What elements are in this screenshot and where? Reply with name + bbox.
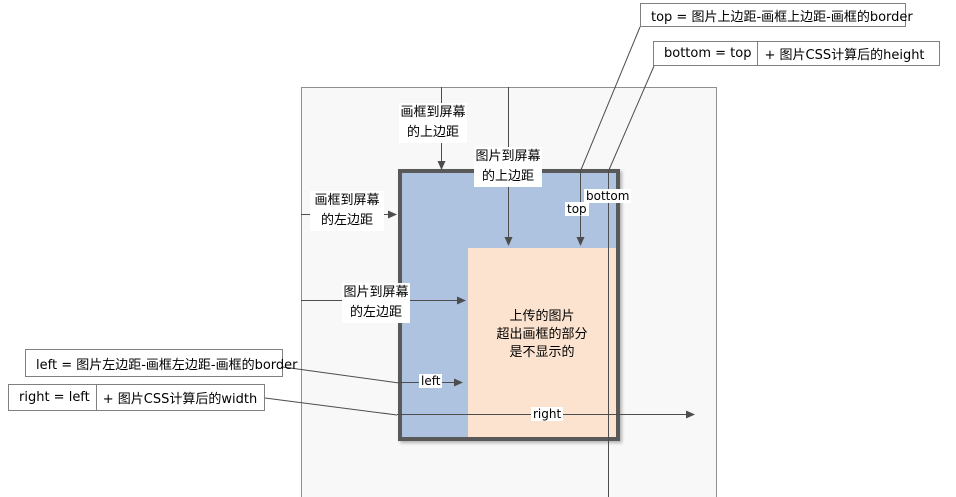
image-overflow-note-line3: 是不显示的	[468, 344, 616, 362]
right-formula-prefix: right = left	[9, 385, 97, 410]
image-overflow-note-line2: 超出画框的部分	[468, 326, 616, 344]
diagram-canvas: 上传的图片 超出画框的部分 是不显示的	[0, 0, 956, 497]
right-formula-suffix: + 图片CSS计算后的width	[97, 388, 265, 407]
bottom-edge-label: bottom	[584, 189, 631, 203]
top-edge-label: top	[565, 202, 589, 216]
left-edge-label: left	[419, 374, 442, 388]
bottom-formula-prefix: bottom = top	[654, 42, 758, 65]
left-formula-box: left = 图片左边距-画框左边距-画框的border	[25, 349, 283, 377]
bottom-formula-box: bottom = top + 图片CSS计算后的height	[653, 41, 940, 66]
image-top-margin-label: 图片到屏幕 的上边距	[474, 147, 542, 187]
frame-top-margin-label: 画框到屏幕 的上边距	[399, 103, 467, 143]
frame-left-margin-label: 画框到屏幕 的左边距	[310, 191, 384, 231]
top-formula-box: top = 图片上边距-画框上边距-画框的border	[640, 3, 906, 27]
top-formula-text: top = 图片上边距-画框上边距-画框的border	[641, 6, 923, 25]
right-formula-box: right = left + 图片CSS计算后的width	[8, 384, 265, 411]
image-overflow-note-line1: 上传的图片	[468, 308, 616, 326]
image-left-margin-label: 图片到屏幕 的左边距	[342, 283, 410, 323]
left-formula-text: left = 图片左边距-画框左边距-画框的border	[26, 354, 308, 373]
right-edge-label: right	[531, 407, 563, 421]
image-overflow-note: 上传的图片 超出画框的部分 是不显示的	[468, 308, 616, 362]
bottom-formula-suffix: + 图片CSS计算后的height	[758, 44, 932, 63]
